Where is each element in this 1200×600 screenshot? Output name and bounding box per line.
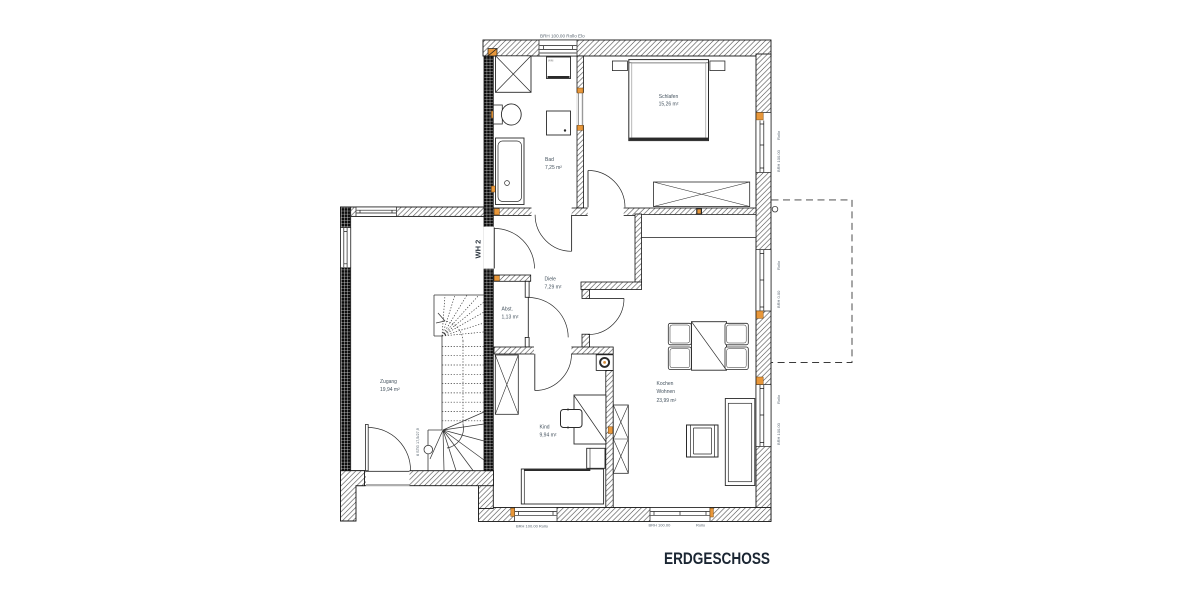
svg-text:6 STG 17,5/27,9: 6 STG 17,5/27,9 [416,428,420,456]
svg-text:19,94 m²: 19,94 m² [380,387,400,393]
svg-text:Abst.: Abst. [502,307,513,313]
svg-text:BRH 100.00: BRH 100.00 [776,422,781,445]
svg-text:1,13 m²: 1,13 m² [502,315,519,321]
svg-text:BRH 0.00: BRH 0.00 [776,290,781,308]
svg-text:Zugang: Zugang [380,379,397,385]
svg-text:Rollo: Rollo [776,394,781,404]
svg-text:Kind: Kind [540,425,550,431]
svg-text:BRH 100.00 Rollo Elo: BRH 100.00 Rollo Elo [540,34,585,39]
svg-text:BRH 100.00: BRH 100.00 [776,149,781,172]
svg-text:7,25 m²: 7,25 m² [545,165,562,171]
svg-text:Bad: Bad [545,157,554,163]
svg-text:WH 2: WH 2 [474,240,483,259]
svg-text:7,29 m²: 7,29 m² [545,285,562,291]
svg-text:Rollo: Rollo [696,523,706,528]
svg-text:ERDGESCHOSS: ERDGESCHOSS [664,550,770,568]
svg-text:9,94 m²: 9,94 m² [540,433,557,439]
svg-text:15,26 m²: 15,26 m² [659,102,679,108]
svg-text:23,99 m²: 23,99 m² [657,398,677,404]
svg-text:Rollo: Rollo [776,260,781,270]
svg-text:BRH 100.00 Rollo: BRH 100.00 Rollo [516,524,549,529]
svg-text:BRH 100.00: BRH 100.00 [649,523,672,528]
svg-text:Diele: Diele [545,277,557,283]
svg-text:Rollo: Rollo [776,130,781,140]
svg-text:Wohnen: Wohnen [657,389,676,395]
svg-text:Schlafen: Schlafen [659,94,679,100]
svg-text:WM: WM [548,59,554,63]
svg-text:Kochen: Kochen [657,381,674,387]
